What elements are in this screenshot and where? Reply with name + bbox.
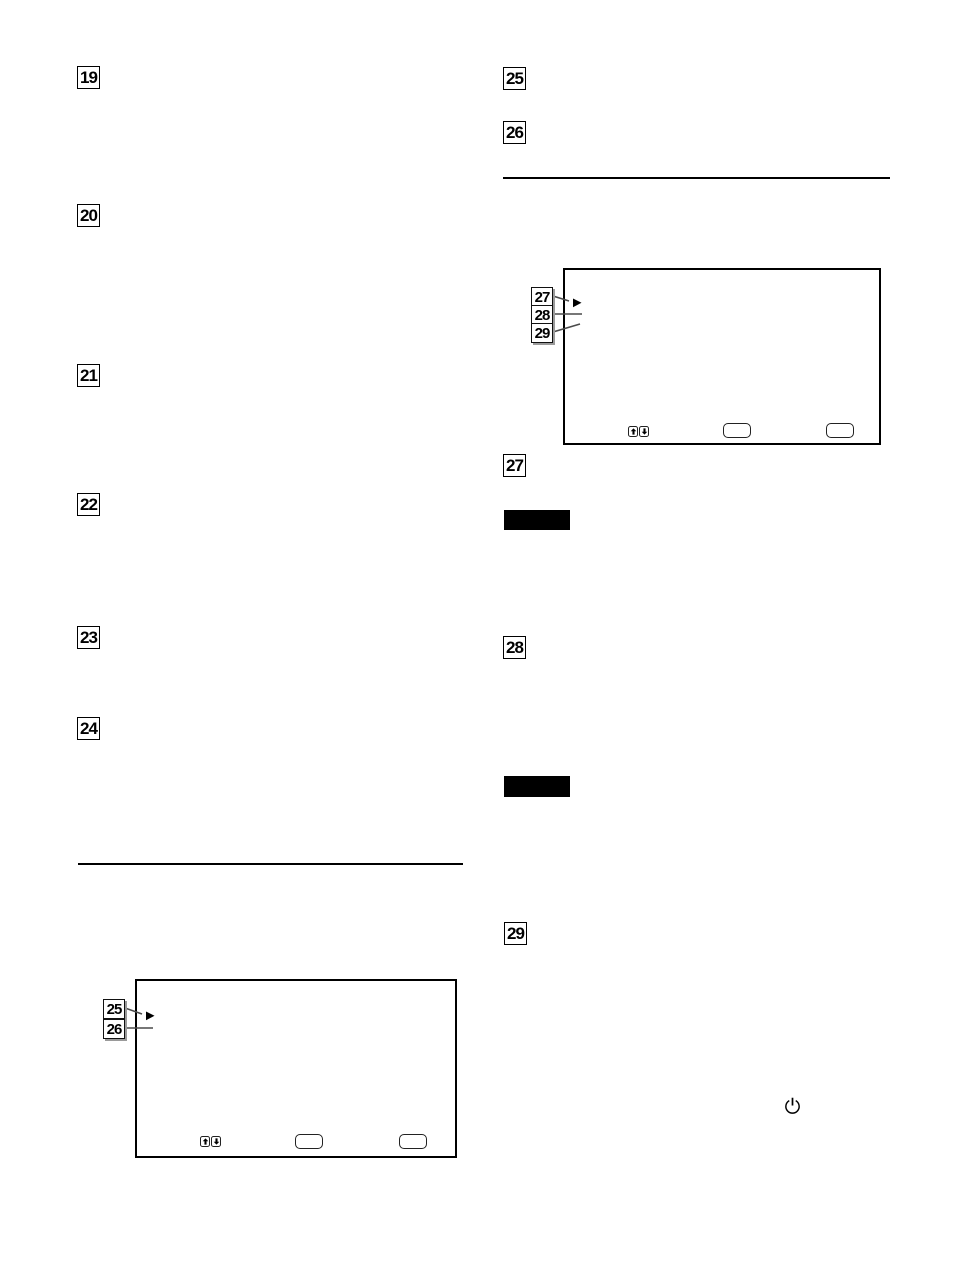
callout-28: 28 [531,305,553,325]
power-icon [783,1096,802,1116]
osd-menu-figure-right [563,268,881,445]
section-number-29: 29 [504,922,527,945]
callout-26: 26 [103,1019,125,1039]
section-number-22: 22 [77,493,100,516]
menu-cursor-icon [145,1011,155,1021]
callout-27: 27 [531,287,553,307]
section-number-19: 19 [77,66,100,89]
section-number-21: 21 [77,364,100,387]
section-divider-right [503,177,890,179]
section-number-23: 23 [77,626,100,649]
down-arrow-icon [639,426,649,437]
section-divider-left [78,863,463,865]
up-down-buttons [200,1136,221,1147]
menu-button [826,423,854,438]
menu-cursor-icon [572,298,582,308]
up-arrow-icon [628,426,638,437]
section-number-26: 26 [503,121,526,144]
callout-25: 25 [103,999,125,1019]
up-down-buttons [628,426,649,437]
up-arrow-icon [200,1136,210,1147]
menu-button [723,423,751,438]
section-number-20: 20 [77,204,100,227]
section-number-28: 28 [503,636,526,659]
callout-29: 29 [531,323,553,343]
section-number-27: 27 [503,454,526,477]
black-label-bar [504,510,570,530]
menu-button [399,1134,427,1149]
osd-menu-figure-left [135,979,457,1158]
menu-button [295,1134,323,1149]
manual-page: 19 20 21 22 23 24 25 26 27 28 29 [0,0,954,1274]
section-number-24: 24 [77,717,100,740]
section-number-25: 25 [503,67,526,90]
black-label-bar [504,776,570,797]
down-arrow-icon [211,1136,221,1147]
